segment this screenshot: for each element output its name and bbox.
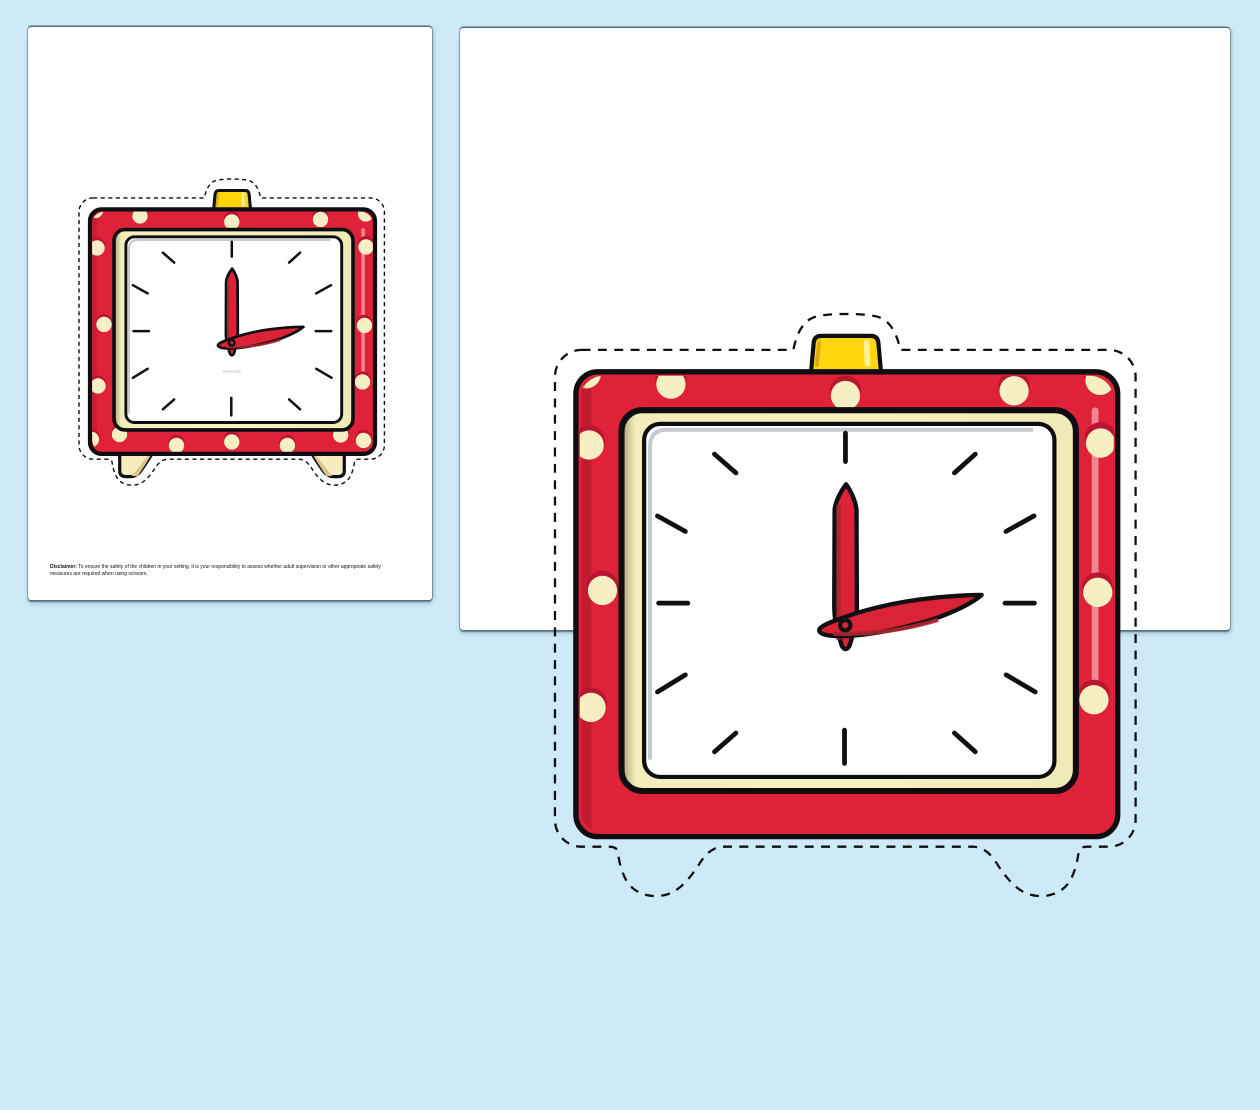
- svg-text:twinkl.com: twinkl.com: [223, 369, 241, 373]
